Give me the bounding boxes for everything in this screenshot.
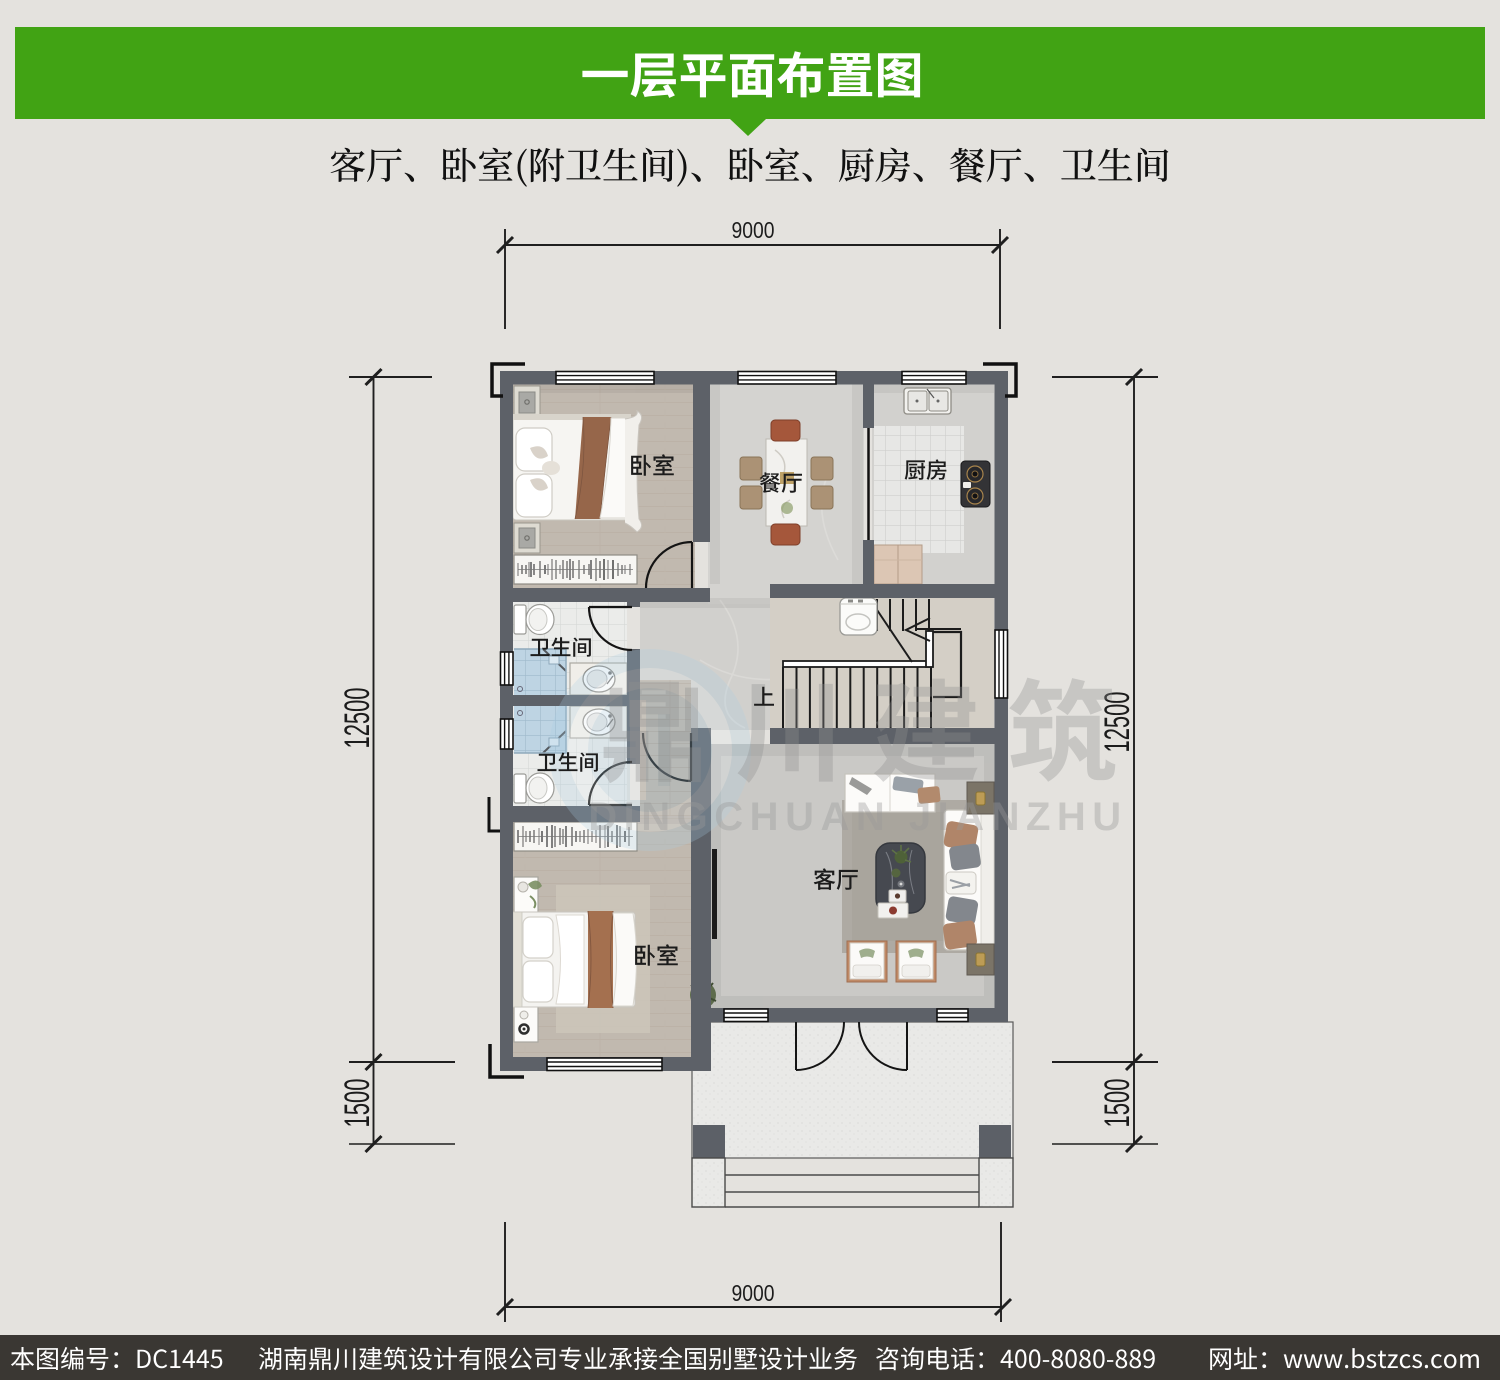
svg-text:12500: 12500 [338, 688, 377, 749]
svg-text:12500: 12500 [1098, 692, 1137, 753]
svg-text:DINGCHUAN JIANZHU: DINGCHUAN JIANZHU [588, 795, 1127, 839]
svg-text:9000: 9000 [732, 1280, 775, 1306]
svg-text:1500: 1500 [338, 1079, 377, 1128]
svg-text:9000: 9000 [732, 217, 775, 243]
svg-text:1500: 1500 [1098, 1079, 1137, 1128]
